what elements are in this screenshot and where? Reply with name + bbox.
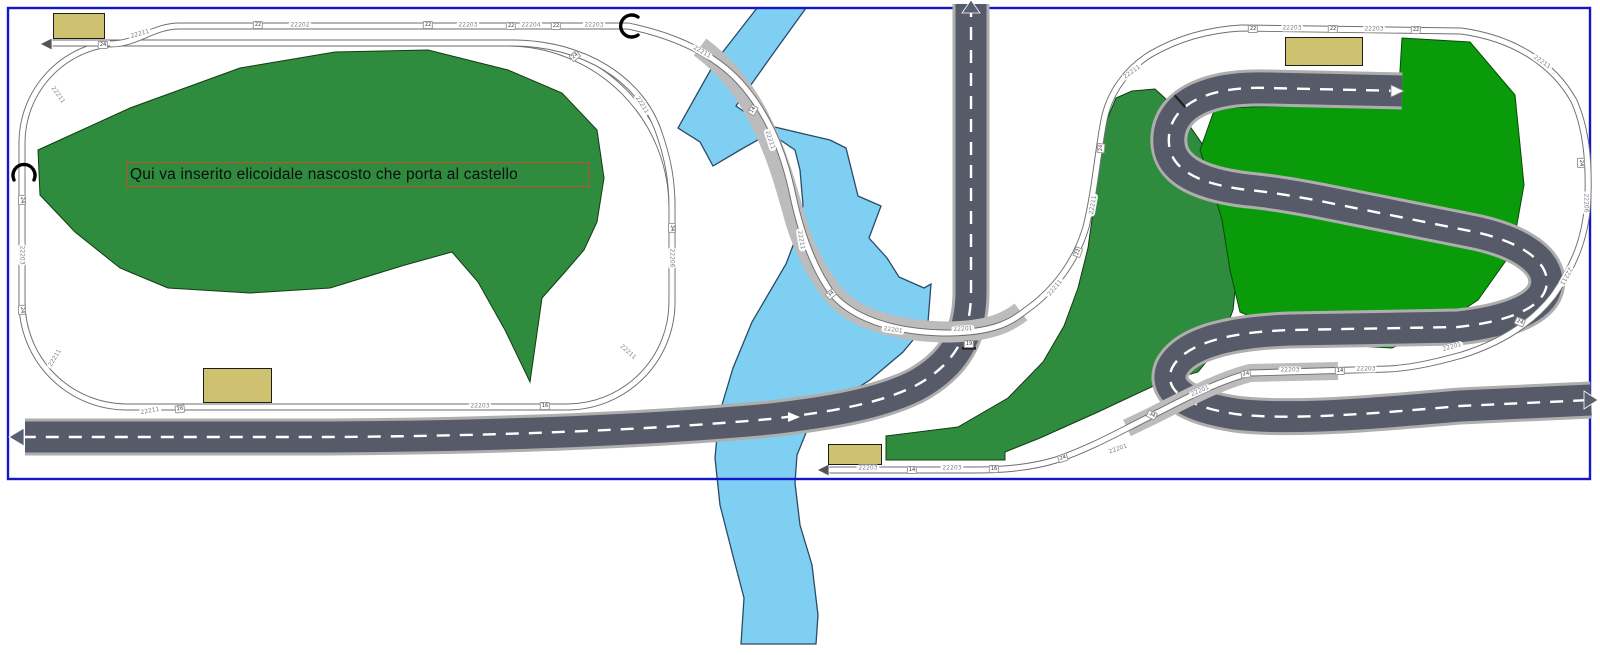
track-plan-drawing bbox=[0, 0, 1600, 655]
track-part-number: 22201 bbox=[951, 325, 974, 333]
building-rectangle[interactable] bbox=[53, 13, 105, 39]
track-joint-marker: 14 bbox=[907, 466, 917, 474]
track-joint-marker: 22 bbox=[1411, 26, 1421, 34]
track-joint-marker: 22 bbox=[423, 21, 433, 29]
track-joint-marker: 24 bbox=[18, 305, 26, 315]
layout-canvas[interactable]: Qui va inserito elicoidale nascosto che … bbox=[0, 0, 1600, 655]
track-joint-marker: 24 bbox=[1240, 369, 1251, 378]
track-joint-marker: 16 bbox=[989, 465, 999, 473]
track-part-number: 22203 bbox=[1354, 366, 1377, 373]
track-joint-marker: 24 bbox=[98, 41, 108, 49]
track-part-number: 22203 bbox=[1280, 25, 1303, 32]
track-joint-marker: 22 bbox=[1328, 25, 1338, 33]
track-part-number: 22203 bbox=[940, 465, 963, 472]
track-joint-marker: 34 bbox=[668, 223, 676, 233]
track-joint-marker: 14 bbox=[1335, 367, 1345, 375]
road-end-arrow-left bbox=[9, 428, 24, 446]
track-joint-marker: 22 bbox=[1248, 25, 1258, 33]
building-rectangle[interactable] bbox=[828, 444, 882, 465]
track-joint-marker: 22 bbox=[253, 21, 263, 29]
track-part-number: 22203 bbox=[856, 465, 879, 472]
track-joint-marker: 24 bbox=[1577, 158, 1585, 168]
track-joint-marker: 24 bbox=[1097, 142, 1106, 153]
track-part-number: 22203 bbox=[1278, 367, 1301, 374]
track-joint-marker: 22 bbox=[551, 22, 561, 30]
track-joint-marker: 22 bbox=[506, 22, 516, 30]
track-joint-marker: 26 bbox=[174, 404, 185, 413]
track-part-number: 22203 bbox=[582, 22, 605, 29]
plan-annotation-text[interactable]: Qui va inserito elicoidale nascosto che … bbox=[126, 162, 589, 187]
track-part-number: 22203 bbox=[1362, 26, 1385, 33]
track-joint-marker: 24 bbox=[18, 195, 26, 205]
track-end-arrow bbox=[817, 464, 829, 476]
track-joint-marker: 19 bbox=[964, 340, 974, 348]
building-rectangle[interactable] bbox=[203, 368, 272, 403]
track-part-number: 22203 bbox=[19, 243, 26, 266]
track-part-number: 22202 bbox=[288, 22, 311, 29]
track-joint-marker: 16 bbox=[540, 402, 550, 410]
hill-left bbox=[38, 50, 604, 382]
track-part-number: 22206 bbox=[669, 246, 676, 269]
building-rectangle[interactable] bbox=[1285, 37, 1363, 66]
track-end-arrow bbox=[40, 38, 52, 50]
track-part-number: 22206 bbox=[1583, 191, 1590, 214]
track-part-number: 22204 bbox=[519, 22, 542, 29]
track-part-number: 22203 bbox=[468, 403, 491, 410]
track-part-number: 22203 bbox=[456, 22, 479, 29]
